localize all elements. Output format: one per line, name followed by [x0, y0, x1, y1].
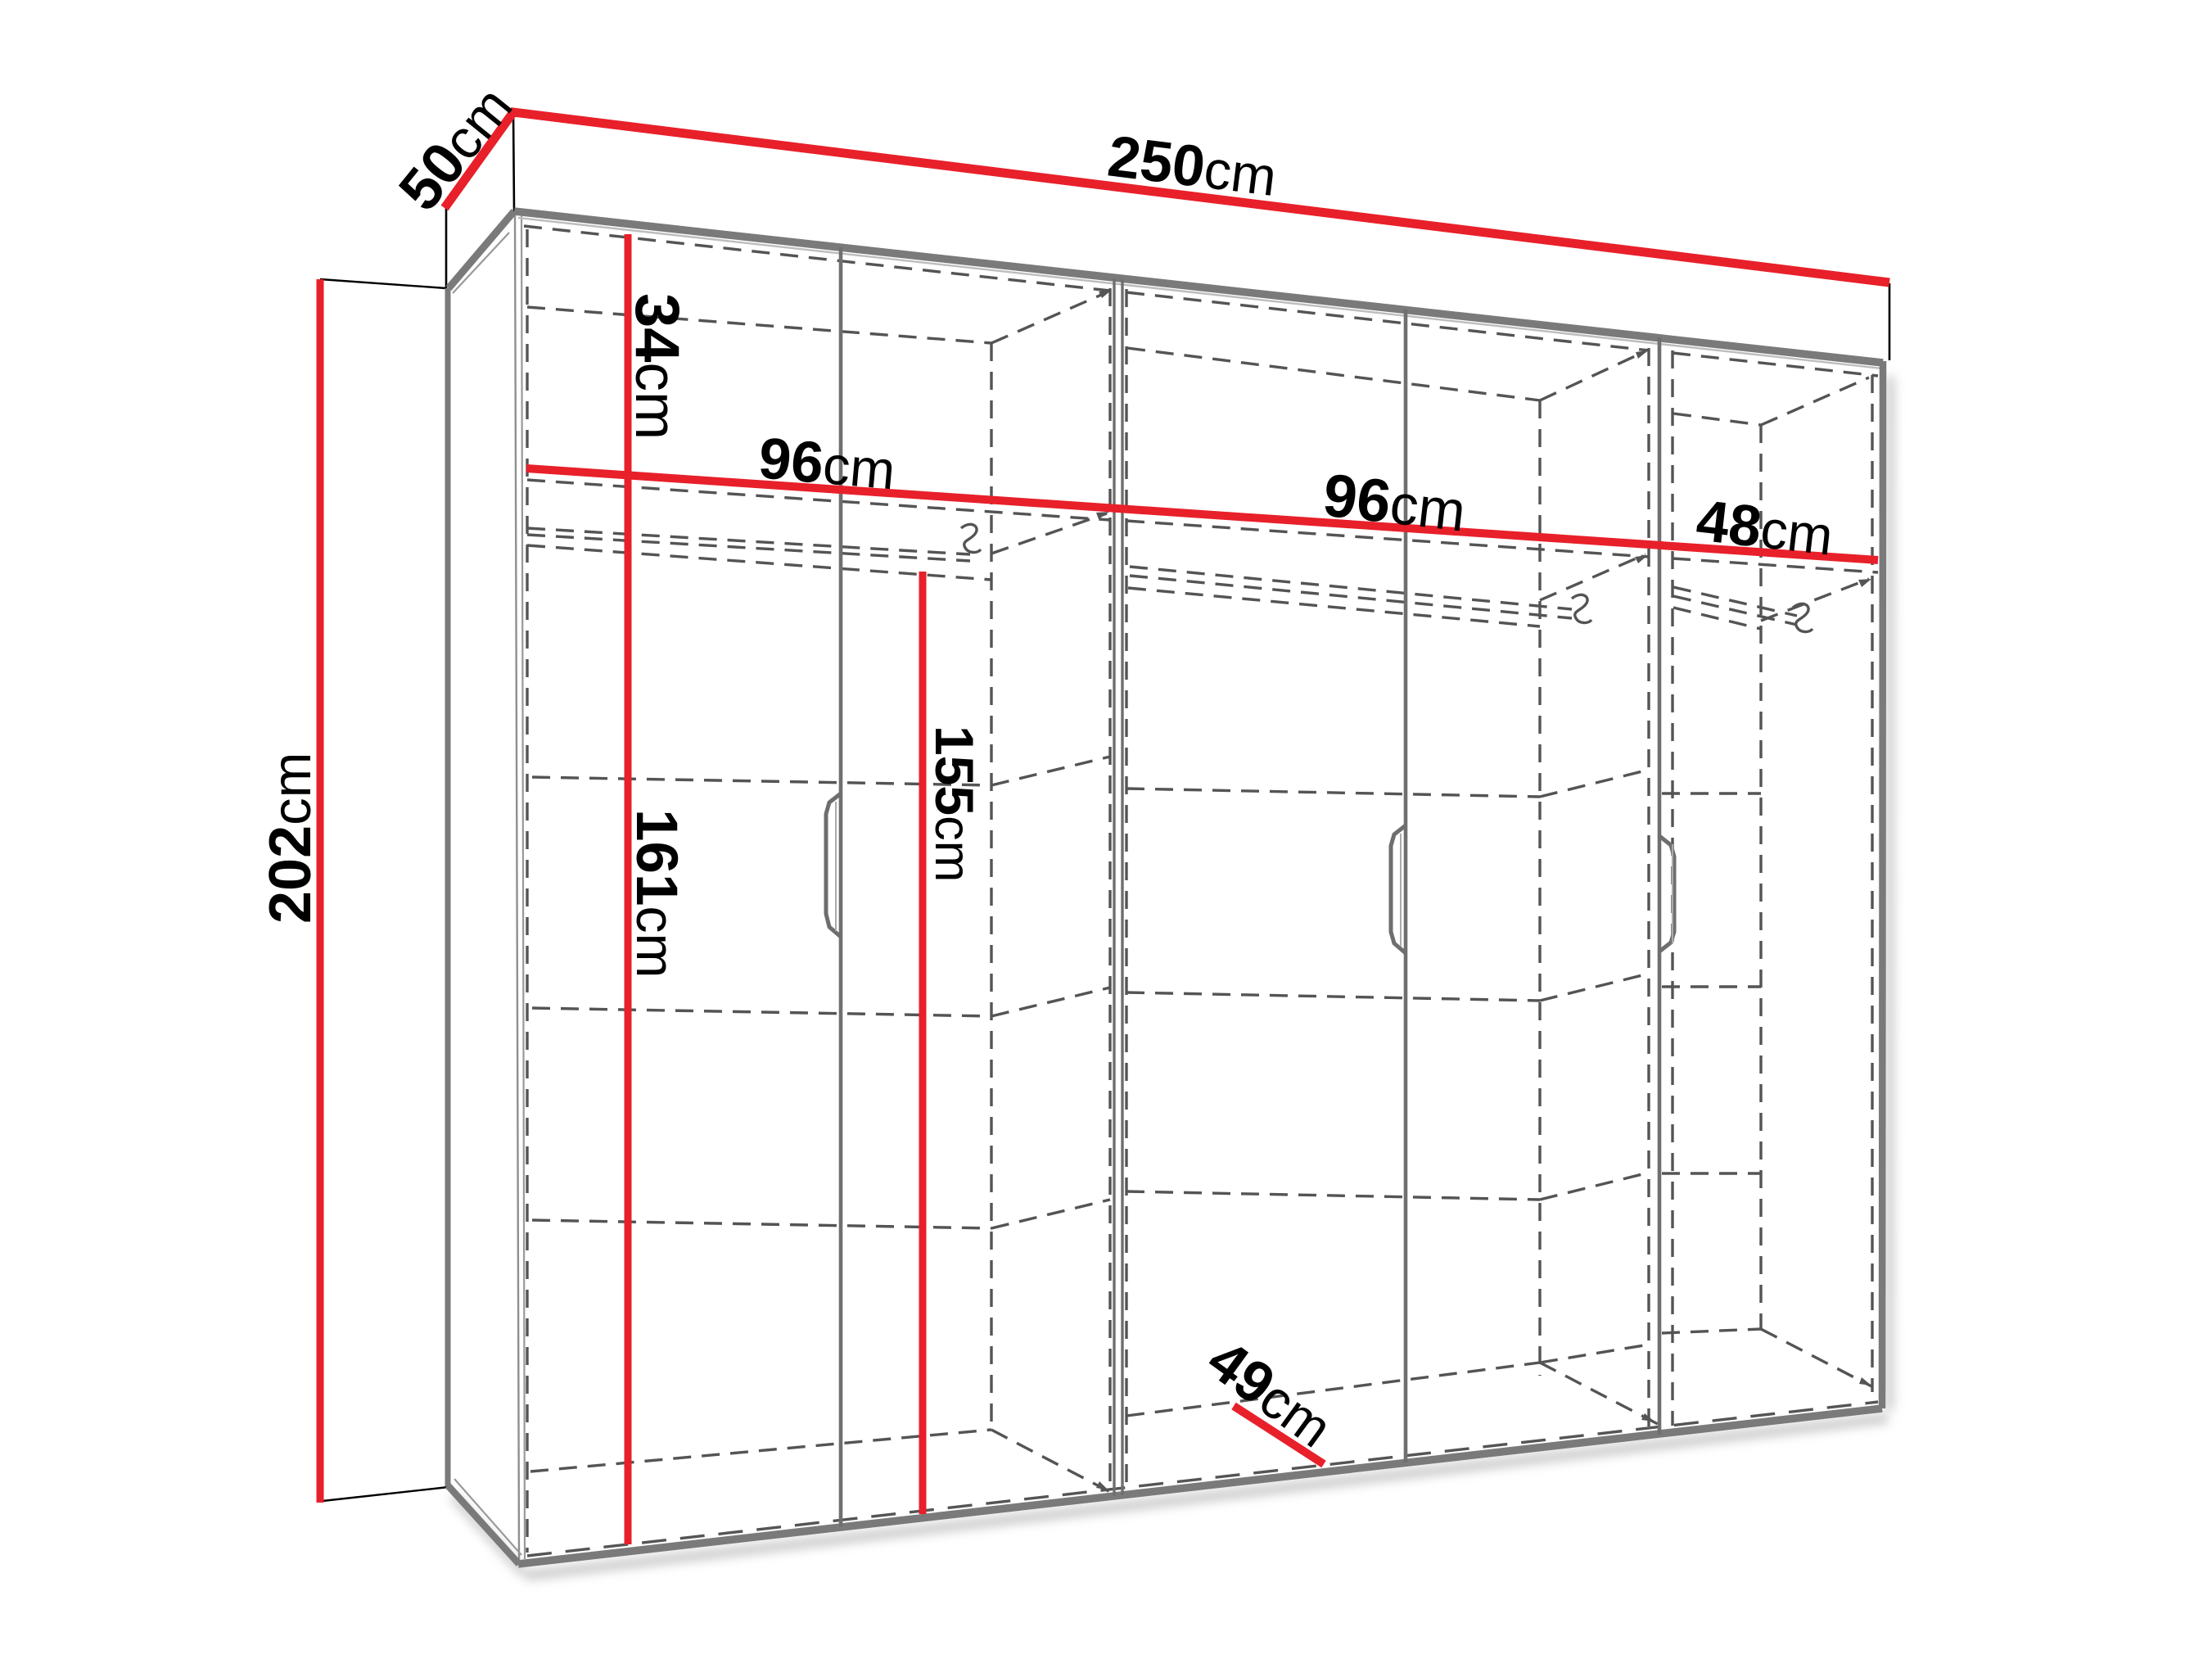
svg-text:161cm: 161cm: [624, 809, 688, 978]
svg-text:155cm: 155cm: [924, 726, 985, 882]
svg-text:202cm: 202cm: [258, 753, 323, 924]
svg-text:34cm: 34cm: [622, 293, 692, 440]
